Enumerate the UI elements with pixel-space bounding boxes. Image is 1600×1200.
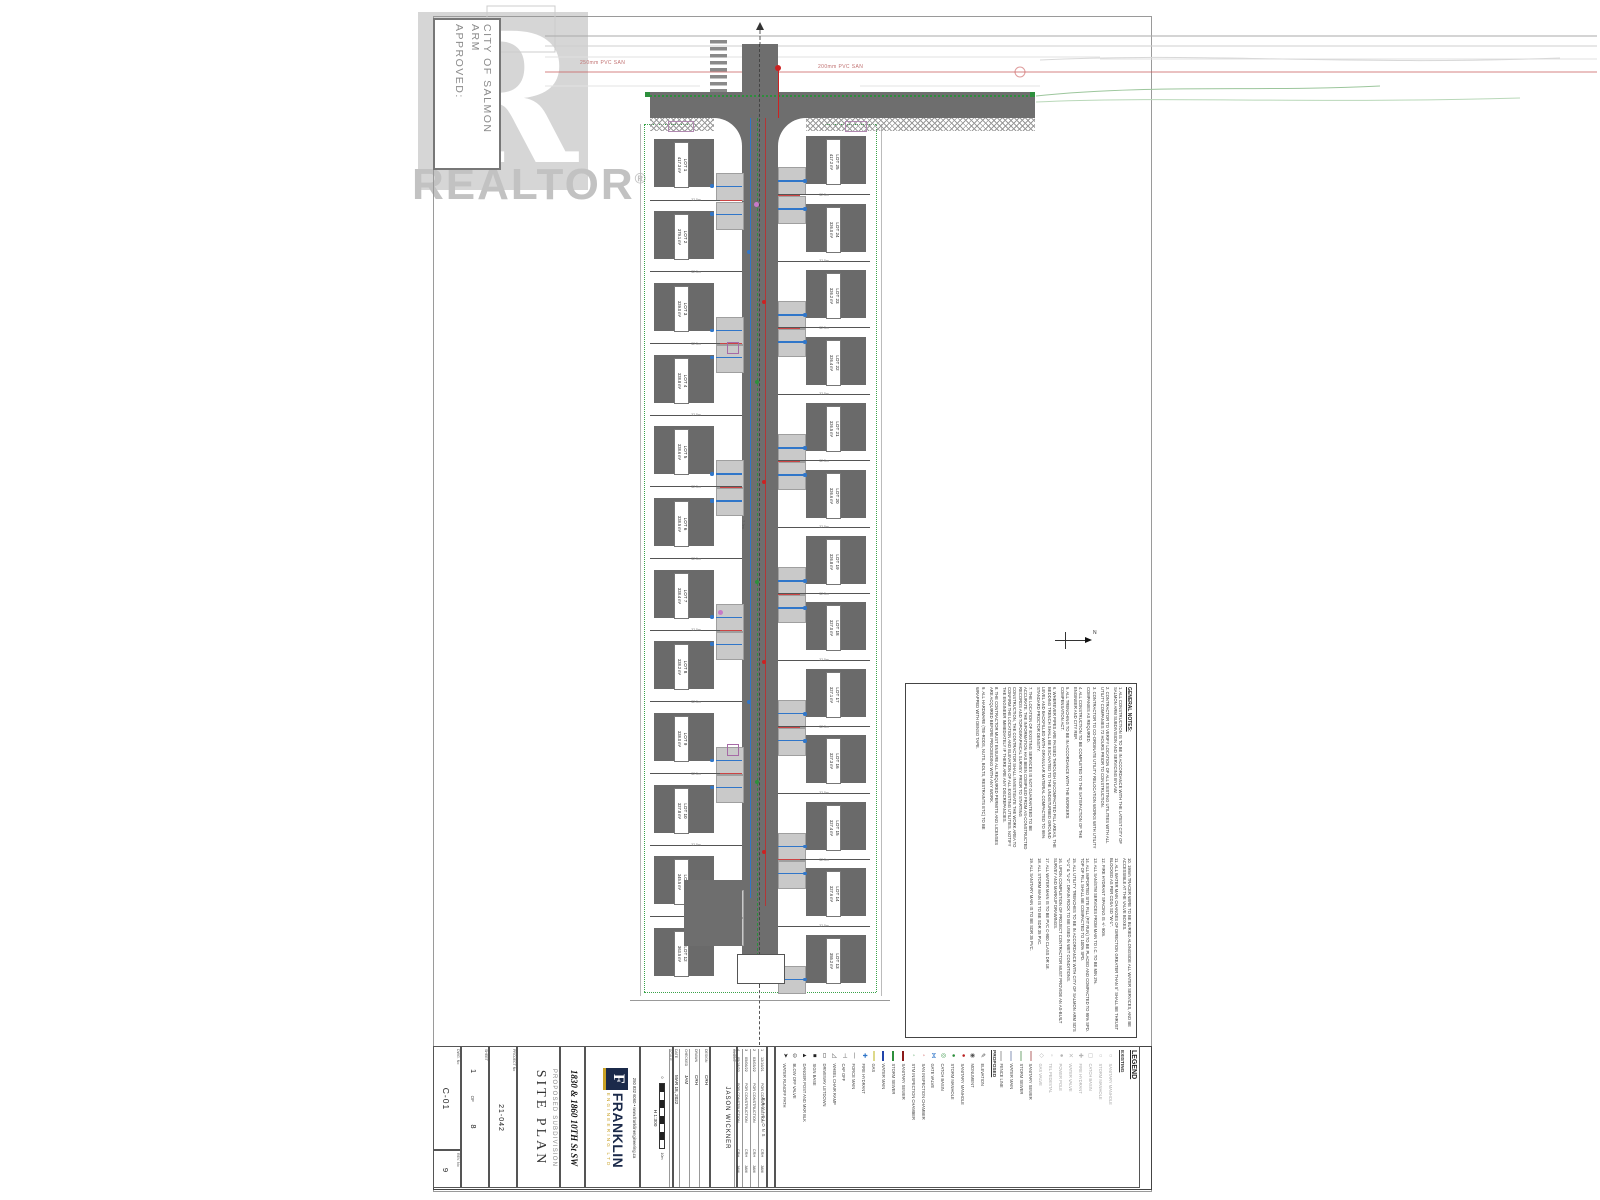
lot-parcel: LOT 16327.3 m²32.5m xyxy=(778,726,870,793)
lot-parcel: LOT 6328.5 m²32.5m xyxy=(650,486,742,559)
driveway xyxy=(778,196,806,224)
general-note: 15. ALL UTILITY TRENCHES TO BE IN ACCORD… xyxy=(1066,858,1077,1032)
legend-label: ELEVATION xyxy=(980,1064,985,1086)
revision-dwn: CRH xyxy=(761,1149,765,1165)
general-note: 3. CONTRACTOR TO CO-ORDINATE UTILITY REL… xyxy=(1086,687,1097,850)
water-service-marker xyxy=(803,606,807,610)
lot-label: LOT 22326.4 m² xyxy=(826,340,841,386)
legend-entry: ◦STM INSPECTION CHAMBER xyxy=(908,1050,918,1185)
rev-number-cell: REV. No 9 xyxy=(433,1150,461,1188)
water-service-marker xyxy=(803,340,807,344)
legend-entry: ●POWER POLE xyxy=(1056,1050,1066,1185)
boundary-left xyxy=(644,124,645,992)
storm-manhole xyxy=(755,780,759,784)
revisions-header: REVISIONS xyxy=(761,1098,766,1139)
legend-line-swatch xyxy=(882,1051,884,1061)
prv-station-marker xyxy=(727,744,739,756)
existing-building-outline xyxy=(845,121,867,132)
legend-label: WATER RUNOFF PATH xyxy=(782,1064,787,1108)
legend-entry: ○STORM MANHOLE xyxy=(1095,1050,1105,1185)
lot-parcel: LOT 1417.3 m² xyxy=(650,128,742,200)
lot-label: LOT 14327.6 m² xyxy=(826,871,841,917)
revision-desc: FOR CONSTRUCTION xyxy=(745,1083,749,1149)
san-manhole xyxy=(762,300,766,304)
lot-label: LOT 6328.5 m² xyxy=(674,501,689,547)
firm-contact: 250 832 6060 • www.franklinengineering.c… xyxy=(632,1049,637,1187)
road-end-cap xyxy=(737,954,785,984)
storm-manhole xyxy=(755,580,759,584)
water-service-line xyxy=(716,644,742,645)
lot-area: 327.0 m² xyxy=(829,606,834,650)
centerline-extension xyxy=(759,985,760,1045)
legend-entry: ➤WATER RUNOFF PATH xyxy=(780,1050,790,1185)
legend-symbol-icon: ◻ xyxy=(1087,1050,1093,1061)
lot-parcel: LOT 19326.8 m²32.5m xyxy=(778,527,870,594)
legend-label: DANGER POST AND MKR BLK xyxy=(802,1064,807,1122)
legend-entry: STORM SEWER xyxy=(1016,1050,1026,1185)
legend-symbol-icon: ▲ xyxy=(801,1050,807,1061)
lot-parcel: LOT 14327.6 m²32.5m xyxy=(778,859,870,926)
revision-ckd: JAM xyxy=(761,1165,765,1181)
general-note: 2. CONTRACTOR TO VERIFY LOCATION OF ALL … xyxy=(1099,687,1110,850)
lot-dimension-label: 32.5m xyxy=(778,392,870,396)
lot-id: LOT 4 xyxy=(682,359,688,403)
legend-line-swatch xyxy=(873,1051,875,1061)
legend-label: POWER POLE xyxy=(1058,1064,1063,1092)
water-service-marker xyxy=(710,642,714,646)
lot-label: LOT 3329.0 m² xyxy=(674,286,689,332)
lot-dimension-label: 32.5m xyxy=(778,459,870,463)
lot-id: LOT 20 xyxy=(834,474,840,518)
lot-area: 326.0 m² xyxy=(829,208,834,252)
firm-name: FRANKLIN xyxy=(612,1093,625,1169)
lot-label: LOT 25417.2 m² xyxy=(826,139,841,185)
lot-id: LOT 8 xyxy=(682,645,688,689)
rev-number: 9 xyxy=(441,1168,450,1172)
revision-row: 305/06/22FOR CONSTRUCTIONCRHJAM xyxy=(742,1049,750,1187)
legend-symbol-icon: ◦ xyxy=(910,1050,916,1061)
lot-area: 327.8 m² xyxy=(677,789,682,833)
revision-date: 12/16/21 xyxy=(761,1057,765,1083)
lot-label: LOT 9328.0 m² xyxy=(674,716,689,762)
legend-symbol-icon: ▭ xyxy=(821,1050,827,1061)
legend-line-swatch xyxy=(902,1051,904,1061)
legend-label: GAS VALVE xyxy=(1038,1064,1043,1086)
lot-label: LOT 13355.2 m² xyxy=(826,938,841,984)
survey-line-right xyxy=(881,124,882,996)
project-address-cell: 1830 & 1860 10TH St SW xyxy=(560,1046,585,1188)
legend-entry: ⊖BLOW OFF VALVE xyxy=(790,1050,800,1185)
lot-parcel: LOT 3329.0 m²32.5m xyxy=(650,271,742,344)
water-service-marker xyxy=(803,313,807,317)
lot-label: LOT 4328.8 m² xyxy=(674,358,689,404)
project-address: 1830 & 1860 10TH St SW xyxy=(569,1070,579,1166)
sheet-cell: SHEET 1 OF 8 xyxy=(461,1046,489,1188)
sheet-total: 8 xyxy=(469,1124,478,1128)
revision-no: 1 xyxy=(761,1049,765,1057)
client-name: JASON WICKNER xyxy=(724,1049,730,1187)
existing-building-outline xyxy=(668,121,694,132)
lot-parcel: LOT 18327.0 m²32.5m xyxy=(778,593,870,660)
legend-entry: GAS xyxy=(869,1050,879,1185)
legend-entry: ◉MONUMENT xyxy=(968,1050,978,1185)
rev-label: REV. No xyxy=(456,1153,460,1187)
legend-label: STORM SEWER xyxy=(891,1064,896,1095)
revision-no: 2 xyxy=(753,1049,757,1057)
lot-area: 328.4 m² xyxy=(677,574,682,618)
lot-dimension-label: 32.5m xyxy=(650,700,742,704)
legend-label: WATER MAIN xyxy=(881,1064,886,1090)
scale-bar xyxy=(660,1083,666,1149)
lot-parcel: LOT 10327.8 m²32.5m xyxy=(650,773,742,846)
pipe-label-left: 250mm PVC SAN xyxy=(580,60,625,66)
lot-label: LOT 21326.5 m² xyxy=(826,406,841,452)
legend-entry: ◿WHEEL CHAIR RAMP xyxy=(829,1050,839,1185)
utility-marker xyxy=(718,610,723,615)
approval-stamp: CITY OF SALMON ARM APPROVED: xyxy=(433,18,501,170)
water-service-marker xyxy=(803,739,807,743)
sanitary-main xyxy=(765,118,766,906)
lot-dimension-label: 32.5m xyxy=(778,193,870,197)
revision-ckd: JAM xyxy=(753,1165,757,1181)
dwg-number-cell: DWG. No C-01 xyxy=(433,1046,461,1150)
lot-dimension-label: 32.5m xyxy=(778,259,870,263)
water-service-line xyxy=(716,186,742,187)
lot-label: LOT 10327.8 m² xyxy=(674,788,689,834)
project-number: 21-042 xyxy=(497,1104,504,1132)
lot-area: 345.5 m² xyxy=(677,860,682,904)
general-note: 19. ALL SANITARY MAIN IS TO BE SDR 35 PV… xyxy=(1029,858,1034,1032)
lot-id: LOT 1 xyxy=(682,143,688,187)
legend-label: GATE VALVE xyxy=(930,1064,935,1089)
road-stem xyxy=(742,44,778,956)
legend-symbol-icon: ○ xyxy=(1097,1050,1103,1061)
legend-label: STM INSPECTION CHAMBER xyxy=(911,1064,916,1120)
lot-area: 355.2 m² xyxy=(829,939,834,983)
lot-area: 327.3 m² xyxy=(829,739,834,783)
revision-ckd: JAM xyxy=(745,1165,749,1181)
legend-symbol-icon: ▫ xyxy=(1048,1050,1054,1061)
legend-entry: FENCE LINE xyxy=(996,1050,1006,1185)
lot-dimension-label: 32.5m xyxy=(778,525,870,529)
legend-label: CATCH BASIN xyxy=(940,1064,945,1091)
legend-entry: ●SANITARY MANHOLE xyxy=(958,1050,968,1185)
lot-id: LOT 7 xyxy=(682,574,688,618)
lot-label: LOT 2379.1 m² xyxy=(674,214,689,260)
field-value: CRH xyxy=(694,1075,699,1085)
lot-column-east: LOT 25417.2 m²LOT 24326.0 m²32.5mLOT 233… xyxy=(778,128,870,992)
legend-entry: STORM SEWER xyxy=(888,1050,898,1185)
lot-parcel: LOT 15327.4 m²32.5m xyxy=(778,793,870,860)
legend-cell: LEGENDEXISTING○SANITARY MANHOLE○STORM MA… xyxy=(775,1046,1140,1188)
lot-label: LOT 19326.8 m² xyxy=(826,539,841,585)
lot-area: 326.6 m² xyxy=(829,474,834,518)
lot-area: 326.5 m² xyxy=(829,407,834,451)
legend-label: SANITARY MANHOLE xyxy=(1108,1064,1113,1105)
legend-entry: ✚FIRE HYDRANT xyxy=(859,1050,869,1185)
road-width-label: 7.3m xyxy=(738,520,746,550)
driveway xyxy=(778,595,806,623)
stamp-line2: APPROVED: xyxy=(453,24,465,164)
storm-stub-left xyxy=(645,92,650,97)
sheet-label: SHEET xyxy=(484,1049,488,1187)
legend-entry: ✚FIRE HYDRANT xyxy=(1075,1050,1085,1185)
legend-symbol-icon: ● xyxy=(950,1050,956,1061)
lot-dimension-label: 32.5m xyxy=(650,628,742,632)
water-service-line xyxy=(778,846,804,847)
legend-symbol-icon: ⊖ xyxy=(791,1050,797,1061)
lot-id: LOT 15 xyxy=(834,806,840,850)
drawing-title: SITE PLAN xyxy=(532,1049,548,1187)
water-service-line xyxy=(716,760,742,761)
lot-area: 326.8 m² xyxy=(829,540,834,584)
legend-entry: ◻CATCH BASIN xyxy=(1085,1050,1095,1185)
dwg-label: DWG. No xyxy=(456,1049,460,1149)
legend-symbol-icon: ● xyxy=(1058,1050,1064,1061)
driveway xyxy=(716,775,744,803)
pipe-label-right: 200mm PVC SAN xyxy=(818,64,863,70)
legend-entry: ▲DANGER POST AND MKR BLK xyxy=(799,1050,809,1185)
water-service-line xyxy=(778,314,804,315)
lot-label: LOT 8328.2 m² xyxy=(674,644,689,690)
lot-label: LOT 23326.2 m² xyxy=(826,273,841,319)
lot-parcel: LOT 2379.1 m²32.5m xyxy=(650,200,742,273)
legend-label: STORM MANHOLE xyxy=(1098,1064,1103,1100)
legend-group-header: EXISTING xyxy=(1115,1050,1124,1185)
water-service-marker xyxy=(710,329,714,333)
lot-area: 328.2 m² xyxy=(677,645,682,689)
water-service-line xyxy=(778,474,804,475)
lot-dimension-label: 32.5m xyxy=(650,557,742,561)
scale-value: H 1:300 xyxy=(653,1049,658,1187)
general-notes-title: GENERAL NOTES: xyxy=(1126,687,1132,850)
legend-symbol-icon: ◿ xyxy=(831,1050,837,1061)
lot-area: 328.8 m² xyxy=(677,359,682,403)
general-note: 4. ALL CONSTRUCTION TO BE COMPLETED TO T… xyxy=(1073,687,1084,850)
lot-id: LOT 9 xyxy=(682,717,688,761)
water-service-marker xyxy=(803,473,807,477)
staff-fields-cell: DESIGNCRH DRAWNCRH CHECKEDJAM DATEMAR 18… xyxy=(673,1046,710,1188)
legend-symbol-icon: ⊣ xyxy=(841,1050,847,1061)
lot-dimension-label: 32.5m xyxy=(778,725,870,729)
legend-symbol-icon: ➤ xyxy=(782,1050,788,1061)
lot-id: LOT 22 xyxy=(834,341,840,385)
legend-entry: ▭DRIVEWAY LETDOWN xyxy=(819,1050,829,1185)
legend-line-swatch xyxy=(892,1051,894,1061)
lot-id: LOT 10 xyxy=(682,789,688,833)
driveway xyxy=(716,632,744,660)
legend-label: SIGN BASE xyxy=(812,1064,817,1086)
water-service-line xyxy=(778,873,804,874)
lot-area: 326.4 m² xyxy=(829,341,834,385)
lot-parcel: LOT 17327.1 m²32.5m xyxy=(778,660,870,727)
legend-line-swatch xyxy=(1020,1051,1022,1061)
lot-dimension-label: 32.5m xyxy=(778,326,870,330)
water-service-line xyxy=(778,341,804,342)
water-service-line xyxy=(716,787,742,788)
general-note: 16. UPON COMPLETION OF PROJECT CONTRACTO… xyxy=(1053,858,1064,1032)
lot-parcel: LOT 20326.6 m²32.5m xyxy=(778,460,870,527)
legend-entry: ○SANITARY MANHOLE xyxy=(1105,1050,1115,1185)
revision-no: 4 xyxy=(737,1049,741,1057)
lot-parcel: LOT 22326.4 m²32.5m xyxy=(778,327,870,394)
boundary-right xyxy=(876,124,877,992)
stamp-line1: CITY OF SALMON ARM xyxy=(469,24,493,164)
lot-dimension-label: 32.5m xyxy=(778,858,870,862)
legend-symbol-icon: ○ xyxy=(1107,1050,1113,1061)
lot-id: LOT 23 xyxy=(834,274,840,318)
lot-id: LOT 18 xyxy=(834,606,840,650)
dwg-number: C-01 xyxy=(441,1088,451,1110)
field-value: CRH xyxy=(704,1075,709,1085)
water-main xyxy=(750,118,752,898)
legend-label: SAN INSPECTION CHAMBER xyxy=(921,1064,926,1120)
revision-desc: FOR CONSTRUCTION xyxy=(753,1083,757,1149)
field-label: DESIGN xyxy=(704,1049,708,1075)
revision-ckd: JAM xyxy=(737,1165,741,1181)
general-note: 10. 19mm TRACER WIRE TO BE BURIED ALONGS… xyxy=(1121,858,1132,1032)
general-note: 17. ALL WATER MAIN IS TO BE PVC C-900 CL… xyxy=(1045,858,1050,1032)
lot-parcel: LOT 8328.2 m²32.5m xyxy=(650,630,742,703)
lot-label: LOT 20326.6 m² xyxy=(826,473,841,519)
legend-entry: ▫TEL PEDESTAL xyxy=(1046,1050,1056,1185)
revision-date: 03/03/22 xyxy=(753,1057,757,1083)
water-service-marker xyxy=(803,978,807,982)
water-service-marker xyxy=(803,446,807,450)
general-note: 5. ALL TRENCHING TO BE IN ACCORDANCE WIT… xyxy=(1060,687,1071,850)
general-note: 1. ALL CONSTRUCTION IS TO BE IN ACCORDAN… xyxy=(1112,687,1123,850)
north-label: N xyxy=(1093,630,1097,636)
legend-symbol-icon: ✎ xyxy=(979,1050,985,1061)
road-centerline xyxy=(759,44,760,985)
lot-label: LOT 18327.0 m² xyxy=(826,605,841,651)
storm-main-top xyxy=(650,95,1032,97)
water-service-line xyxy=(716,473,742,474)
legend-label: TEL PEDESTAL xyxy=(1048,1064,1053,1094)
legend-label: FIRE HYDRANT xyxy=(1078,1064,1083,1094)
lot-id: LOT 16 xyxy=(834,739,840,783)
legend-entry: ✎ELEVATION xyxy=(977,1050,987,1185)
revisions-header-cell: REVISIONS xyxy=(767,1046,775,1188)
water-service-line xyxy=(716,500,742,501)
lot-area: 379.1 m² xyxy=(677,215,682,259)
water-service-marker xyxy=(710,786,714,790)
lot-id: LOT 24 xyxy=(834,208,840,252)
lot-parcel: LOT 23326.2 m²32.5m xyxy=(778,261,870,328)
water-service-marker xyxy=(710,499,714,503)
lot-label: LOT 1417.3 m² xyxy=(674,142,689,188)
legend-symbol-icon: ✕ xyxy=(1068,1050,1074,1061)
legend-label: BLOW OFF VALVE xyxy=(792,1064,797,1099)
revision-dwn: CRH xyxy=(737,1149,741,1165)
water-service-marker xyxy=(710,356,714,360)
survey-line-left xyxy=(640,124,641,996)
lot-label: LOT 17327.1 m² xyxy=(826,672,841,718)
client-cell: CLIENT: JASON WICKNER xyxy=(710,1046,737,1188)
prv-station-marker xyxy=(727,342,739,354)
water-service-line xyxy=(716,214,742,215)
legend-entry: ◎CATCH BASIN xyxy=(938,1050,948,1185)
firm-logo-cell: 250 832 6060 • www.franklinengineering.c… xyxy=(585,1046,640,1188)
water-service-marker xyxy=(803,179,807,183)
legend-entry: SANITARY SEWER xyxy=(898,1050,908,1185)
storm-manhole xyxy=(755,380,759,384)
lot-label: LOT 7328.4 m² xyxy=(674,573,689,619)
lot-area: 417.2 m² xyxy=(829,140,834,184)
revision-row: 405/18/22FOR CONSTRUCTIONCRHJAM xyxy=(734,1049,742,1187)
legend-label: FENCE LINE xyxy=(999,1064,1004,1088)
general-note: 11. ALL WATER MAIN CHANGES OF DIRECTION … xyxy=(1108,858,1119,1032)
legend-label: SANITARY MANHOLE xyxy=(960,1064,965,1105)
legend-entry: ◇GAS VALVE xyxy=(1036,1050,1046,1185)
driveway xyxy=(716,488,744,516)
water-service-line xyxy=(778,607,804,608)
lot-area: 327.6 m² xyxy=(829,872,834,916)
lot-dimension-label: 32.5m xyxy=(650,843,742,847)
hammerhead-turnaround xyxy=(684,880,742,946)
legend-symbol-icon: ◎ xyxy=(940,1050,946,1061)
drawing-title-cell: PROPOSED SUBDIVISION SITE PLAN xyxy=(517,1046,560,1188)
storm-stub-right xyxy=(1030,92,1035,97)
legend-label: WHEEL CHAIR RAMP xyxy=(832,1064,837,1105)
legend-label: CATCH BASIN xyxy=(1088,1064,1093,1091)
water-service-marker xyxy=(710,184,714,188)
legend-entry: ◦SAN INSPECTION CHAMBER xyxy=(918,1050,928,1185)
lot-area: 328.0 m² xyxy=(677,717,682,761)
general-notes-column-1: GENERAL NOTES:1. ALL CONSTRUCTION IS TO … xyxy=(908,687,1132,850)
lot-dimension-label: 32.5m xyxy=(778,791,870,795)
lot-label: LOT 24326.0 m² xyxy=(826,207,841,253)
driveway xyxy=(716,202,744,230)
san-manhole xyxy=(762,660,766,664)
legend-line-swatch xyxy=(1010,1051,1012,1061)
field-label: DATE xyxy=(674,1049,678,1075)
utility-marker xyxy=(754,202,759,207)
gate-valve xyxy=(747,700,751,704)
lot-id: LOT 13 xyxy=(834,939,840,983)
project-number-cell: PROJECT No 21-042 xyxy=(489,1046,517,1188)
lot-dimension-label: 32.5m xyxy=(778,924,870,928)
lot-parcel: LOT 25417.2 m² xyxy=(778,128,870,194)
lot-dimension-label: 32.5m xyxy=(778,592,870,596)
legend-group-header: PROPOSED xyxy=(987,1050,996,1185)
lot-dimension-label: 32.5m xyxy=(650,485,742,489)
legend-entry: ⊣CAP OFF xyxy=(839,1050,849,1185)
north-arrow-icon: N xyxy=(1055,632,1099,650)
water-service-line xyxy=(778,180,804,181)
lot-area: 329.0 m² xyxy=(677,287,682,331)
firm-subname: ENGINEERING LTD xyxy=(607,1093,612,1169)
lot-parcel: LOT 24326.0 m²32.5m xyxy=(778,194,870,261)
lot-area: 327.4 m² xyxy=(829,806,834,850)
water-service-marker xyxy=(803,207,807,211)
legend-symbol-icon: ✚ xyxy=(861,1050,867,1061)
franklin-logo-letter: F xyxy=(603,1068,628,1090)
lot-parcel: LOT 21326.5 m²32.5m xyxy=(778,394,870,461)
field-label: CHECKED xyxy=(684,1049,688,1075)
sheet-of: OF xyxy=(470,1096,475,1102)
lot-label: LOT 5328.6 m² xyxy=(674,429,689,475)
legend-symbol-icon: ⋈ xyxy=(930,1050,936,1061)
water-service-marker xyxy=(710,615,714,619)
legend-label: CAP OFF xyxy=(841,1064,846,1082)
san-manhole xyxy=(762,850,766,854)
revision-date: 05/06/22 xyxy=(745,1057,749,1083)
legend-entry: SANITARY SEWER xyxy=(1026,1050,1036,1185)
lot-label: LOT 15327.4 m² xyxy=(826,805,841,851)
revision-date: 05/18/22 xyxy=(737,1057,741,1083)
water-service-marker xyxy=(803,712,807,716)
